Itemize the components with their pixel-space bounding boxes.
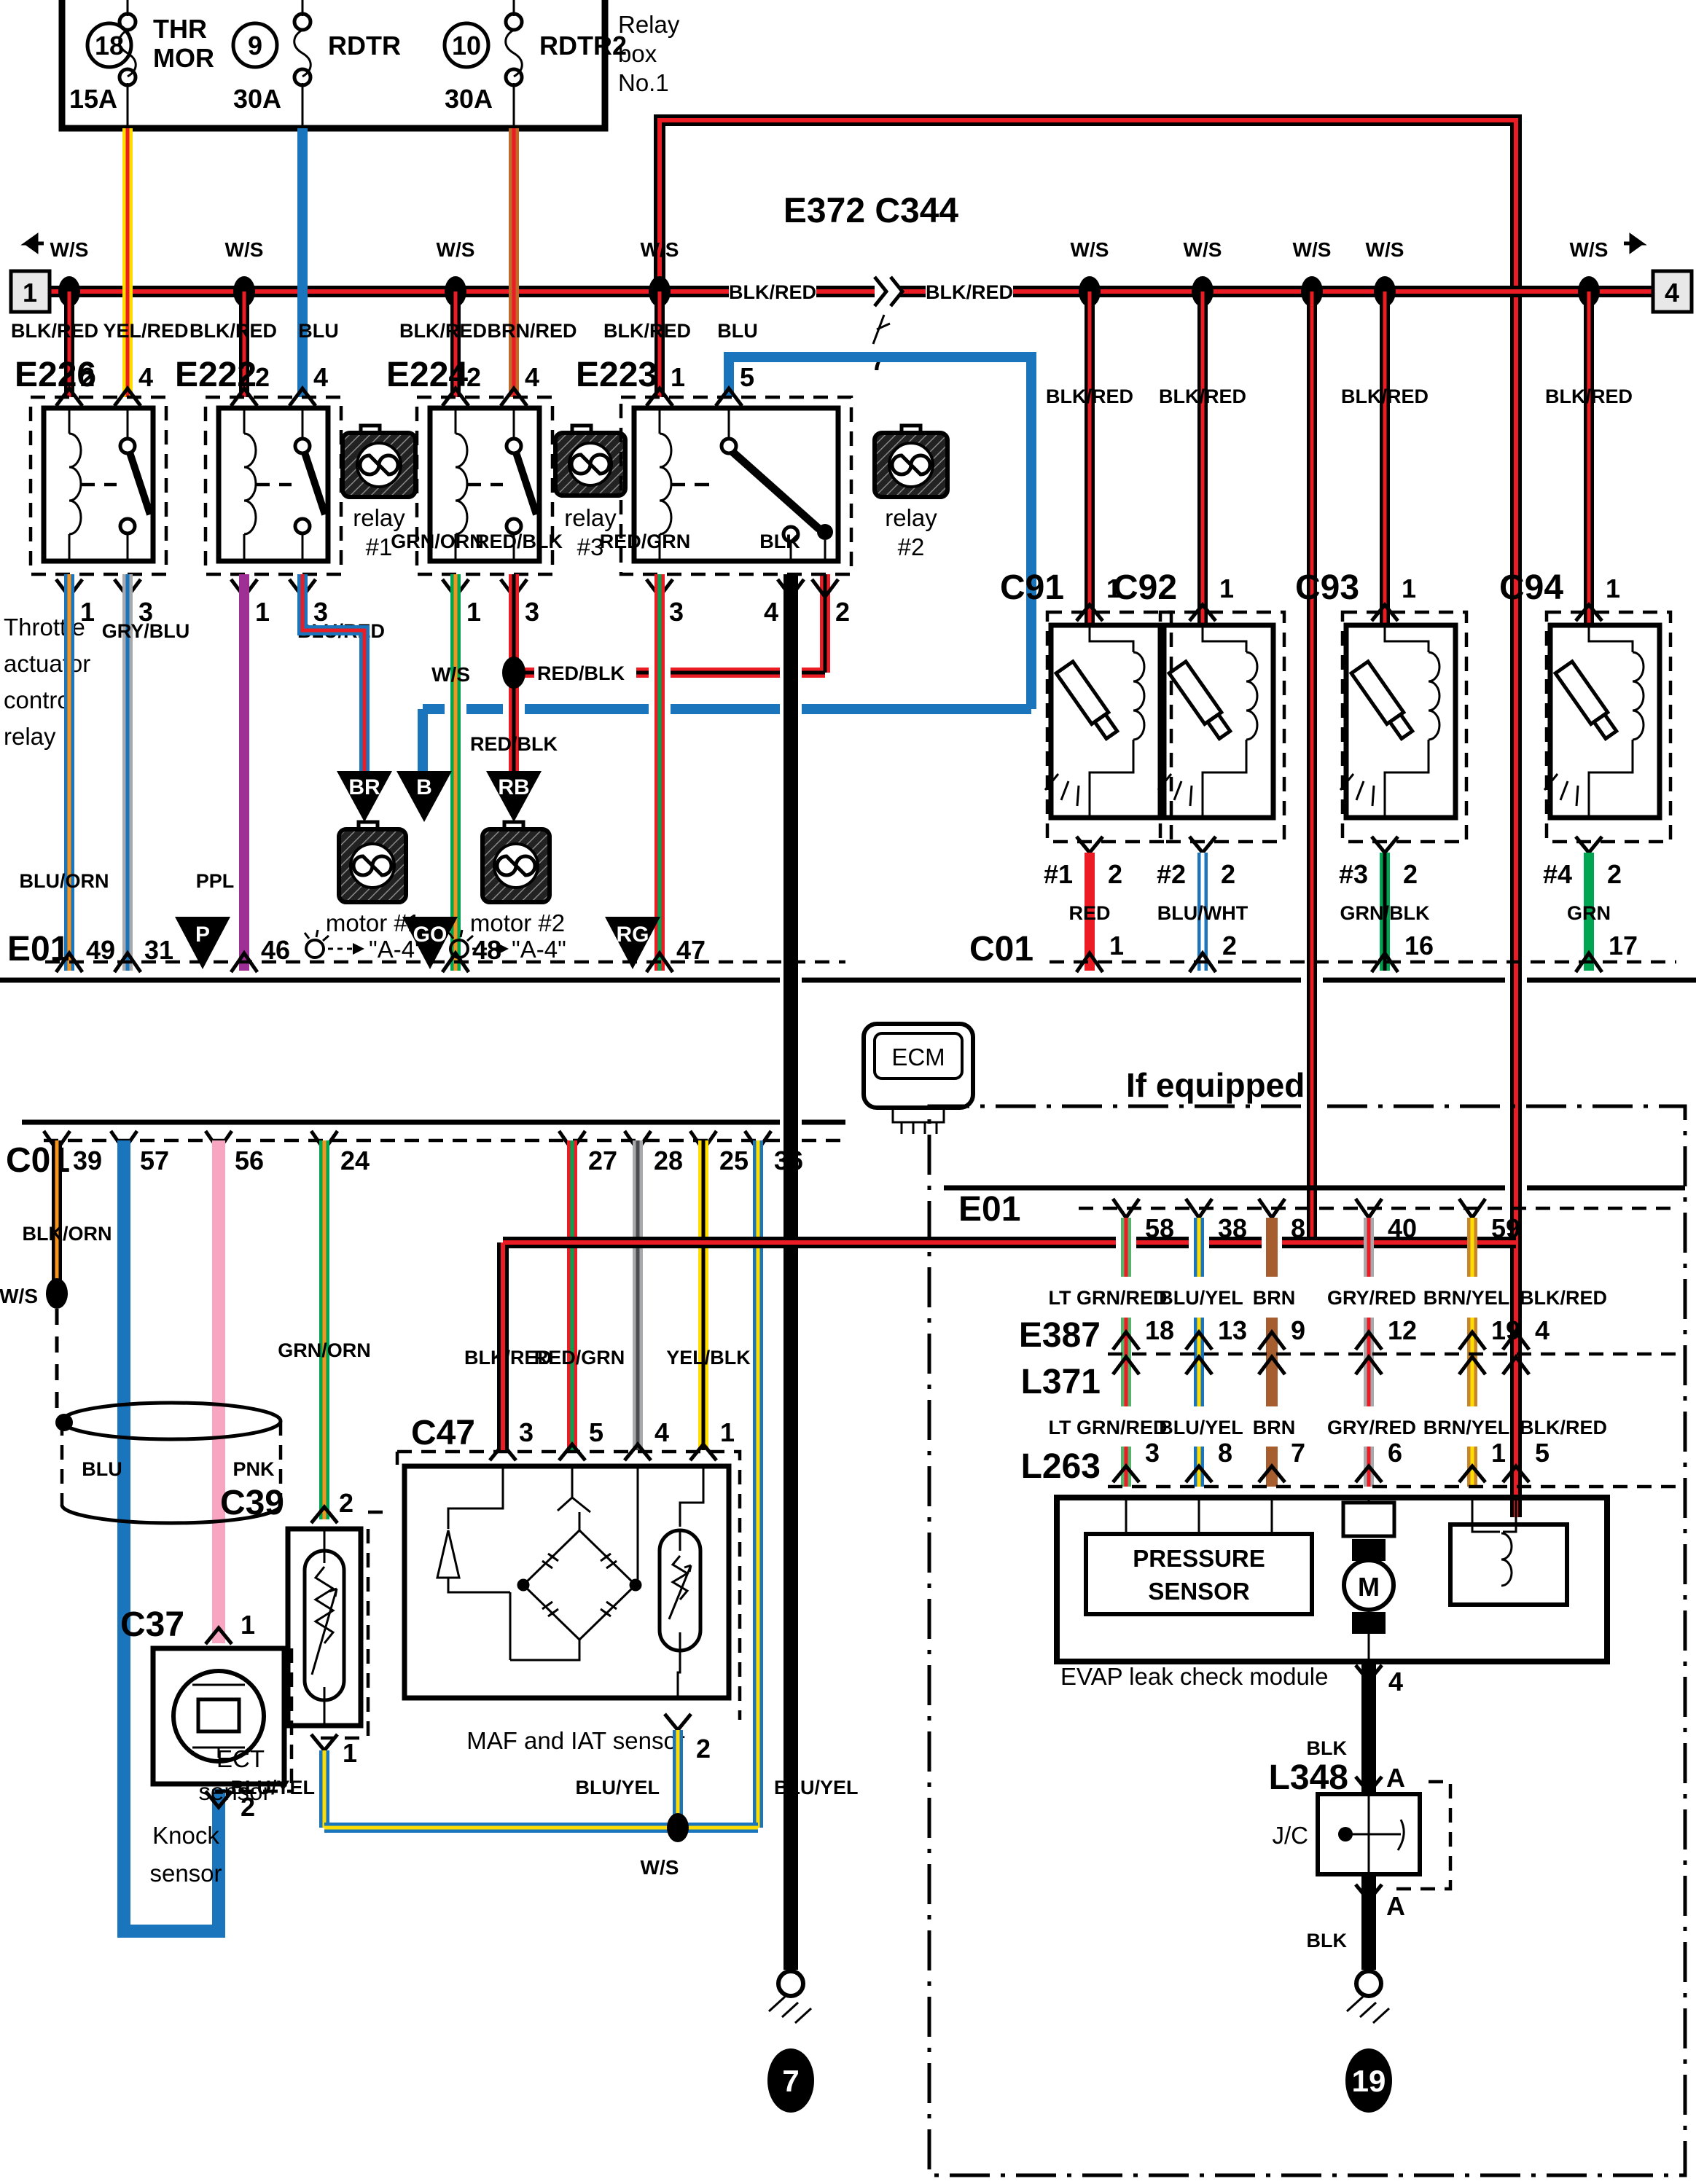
arrow-right-icon [1624,236,1641,251]
c47-pin2: 2 [696,1734,711,1764]
ground-19-icon: 19 [1345,1971,1392,2113]
ws-label: W/S [1071,238,1109,261]
fuse-18: 18 THR MOR 15A [69,0,214,128]
e01-pin47: 47 [676,935,706,965]
evap-label: EVAP leak check module [1060,1663,1328,1690]
e224-wire-top-2: BRN/RED [487,320,577,342]
c01-inj-pin1: 1 [1109,931,1124,960]
injector-c91-id: C91 [1000,568,1064,607]
c92-pin1: 1 [1219,574,1234,603]
motor-2-ref: "A-4" [512,936,566,963]
e01-pin48: 48 [472,935,501,965]
knock-label-2: sensor [149,1860,222,1887]
row2-bluyel: BLU/YEL [1159,1417,1243,1439]
jc-label: J/C [1273,1822,1309,1849]
c01-inj-pin17: 17 [1609,931,1638,960]
blk-label-top: BLK [1307,1737,1348,1759]
pressure-sensor-label-2: SENSOR [1148,1578,1250,1605]
bus-terminal-1-label: 1 [23,278,37,308]
triangle-go-label: GO [413,923,448,947]
relay-e224-id: E224 [386,356,468,394]
e01-pin8: 8 [1291,1213,1305,1243]
row2-ltgrnred: LT GRN/RED [1049,1417,1168,1439]
e387-pin18: 18 [1145,1315,1174,1345]
c92-num: #2 [1157,859,1186,889]
e226-pin2: 2 [80,362,95,392]
inline-wire-label-right: BLK/RED [926,281,1013,303]
evap-module: PRESSURE SENSOR M EVAP leak check module… [1057,1498,1607,1696]
e226-pin4: 4 [138,362,153,392]
e223-wire-top-2: BLU [717,320,758,342]
l348-pin-a-top: A [1386,1763,1405,1793]
main-power-bus: 1 4 W/S W/S W/S W/S W/S W/S W/S W/S W/S … [11,192,1692,376]
maf-bluyel-label: BLU/YEL [575,1777,660,1799]
fan1-caption-1: relay [353,504,405,531]
injector-c93: C93 1 #3 2 GRN/BLK [1295,568,1466,971]
knock-sensor-c37: C37 1 2 Knock sensor [120,1605,292,1887]
e387-id: E387 [1019,1316,1101,1355]
fuse-18-name-2: MOR [153,43,214,73]
e224-pin3: 3 [525,597,539,627]
triangle-br-label: BR [348,775,380,799]
c92-wire-label: BLU/WHT [1157,902,1248,924]
radiator-fan-icon-2: relay #2 [875,426,947,560]
row1-brn: BRN [1253,1287,1296,1309]
triangle-rg-label: RG [617,923,649,947]
e223-pin3: 3 [669,597,684,627]
if-equipped-wires: LT GRN/RED BLU/YEL BRN GRY/RED BRN/YEL B… [1049,1218,1608,1487]
c01-pin25: 25 [719,1146,749,1175]
c01-bottom-wires: BLK/ORN W/S GRN/ORN BLK/RED RED/GRN YEL/… [0,1140,758,1931]
e01-pin31: 31 [144,935,173,965]
row2-gryred: GRY/RED [1327,1417,1416,1439]
ws-label: W/S [1293,238,1332,261]
l263-pin1: 1 [1491,1438,1506,1468]
c01-pin36: 36 [774,1146,803,1175]
c93-wire-label: GRN/BLK [1340,902,1430,924]
e01-right-id: E01 [958,1190,1020,1229]
ect-label-1: ECT [216,1745,265,1772]
c01-inj-pin2: 2 [1222,931,1237,960]
junction-connector-jc: J/C [1273,1794,1421,1874]
fan2-caption-1: relay [885,504,937,531]
row2-blkred: BLK/RED [1520,1417,1607,1439]
ws-label: W/S [437,238,475,261]
c01-bottom-connector: C01 39 57 56 24 27 28 25 36 [6,1122,845,1180]
e01-pin58: 58 [1145,1213,1174,1243]
e223-pin5: 5 [740,362,754,392]
bluorn-label: BLU/ORN [20,870,109,892]
e224-wire-top-1: BLK/RED [399,320,487,342]
wiring-diagram: If equipped 18 THR MOR 15A 9 RDTR 30A 10… [0,0,1696,2184]
ws-label: W/S [1366,238,1404,261]
c47-p5-label: RED/GRN [534,1347,625,1369]
e222-pin1: 1 [255,597,270,627]
bus-terminal-4-label: 4 [1665,278,1679,308]
l263-pin8: 8 [1218,1438,1232,1468]
ground-7-label: 7 [782,2064,799,2098]
redgrn-label: RED/GRN [600,531,691,552]
e223-pin4: 4 [764,597,778,627]
ws-label: W/S [50,238,89,261]
fan1-caption-2: #1 [366,533,393,560]
c01-inj-pin16: 16 [1404,931,1434,960]
row1-ltgrnred: LT GRN/RED [1049,1287,1168,1309]
inj-feed-label: BLK/RED [1545,385,1633,407]
ws-label: W/S [1184,238,1222,261]
motor-1-icon: motor #1 "A-4" [305,822,423,963]
inline-connector-e372-c344: E372 C344 BLK/RED BLK/RED 7 [729,192,1013,376]
row2-brnyel: BRN/YEL [1423,1417,1510,1439]
c01-pin57: 57 [140,1146,169,1175]
e222-wire-top-1: BLK/RED [189,320,277,342]
c37-pin1: 1 [241,1610,255,1640]
c47-pin1: 1 [720,1417,735,1447]
redblk-motor2-label: RED/BLK [470,733,558,755]
row2-brn: BRN [1253,1417,1296,1439]
c39-id: C39 [220,1484,284,1522]
c47-pin3: 3 [519,1417,534,1447]
l263-connector: L263 3 8 7 6 1 5 [1021,1438,1676,1487]
pin36-bluyel-label: BLU/YEL [774,1777,859,1799]
l371-id: L371 [1021,1363,1101,1401]
ws-label: W/S [225,238,264,261]
c47-pin5: 5 [589,1417,603,1447]
motor-2-label: motor #2 [470,909,565,936]
l263-pin3: 3 [1145,1438,1160,1468]
blkorn-label: BLK/ORN [23,1223,112,1245]
c91-num: #1 [1044,859,1073,889]
l348-ground-run: BLK L348 A J/C A BLK 19 [1269,1662,1450,2113]
injector-c92-id: C92 [1113,568,1177,607]
wiring-diagram-page: If equipped 18 THR MOR 15A 9 RDTR 30A 10… [0,0,1696,2184]
e01-pin38: 38 [1218,1213,1247,1243]
e222-pin2: 2 [255,362,270,392]
ws-label: W/S [1570,238,1609,261]
e224-pin2: 2 [466,362,481,392]
relay-e222-id: E222 [175,356,257,394]
row1-bluyel: BLU/YEL [1159,1287,1243,1309]
fuse-18-amp: 15A [69,84,117,114]
row1-blkred: BLK/RED [1520,1287,1607,1309]
e01-pin40: 40 [1388,1213,1417,1243]
e387-chevrons [1113,1332,1529,1374]
c47-p1-label: YEL/BLK [666,1347,751,1369]
fuse-9-number: 9 [248,31,262,60]
l263-pin5: 5 [1535,1438,1550,1468]
l263-pin6: 6 [1388,1438,1402,1468]
c47-id: C47 [411,1414,475,1452]
fan2-caption-2: #2 [898,533,925,560]
grnorn-bot-label: GRN/ORN [278,1339,371,1361]
c01-inj-id: C01 [969,930,1033,968]
triangle-rb: RB [486,771,542,822]
c39-pin2: 2 [339,1488,353,1518]
c47-pin4: 4 [654,1417,669,1447]
c01-pin28: 28 [654,1146,683,1175]
c93-pin2: 2 [1403,859,1418,889]
e222-pin4: 4 [313,362,328,392]
fuse-10-amp: 30A [445,84,493,114]
c37-id: C37 [120,1605,184,1644]
triangle-b: B [396,771,452,822]
arrow-left-icon [26,236,44,251]
injector-c94: C94 1 #4 2 GRN [1499,568,1670,971]
shield-blu-label: BLU [82,1458,122,1480]
c01-pin24: 24 [340,1146,370,1175]
e226-wire-top-2: YEL/RED [103,320,188,342]
ws-splice-label: W/S [431,663,470,686]
relay-box-outline [62,0,605,128]
shield-pnk-label: PNK [232,1458,275,1480]
injector-c92: C92 1 #2 2 BLU/WHT [1113,568,1284,971]
e01-pin59: 59 [1491,1213,1520,1243]
e226-wire-top-1: BLK/RED [11,320,98,342]
fuse-10-name: RDTR2 [539,31,627,60]
e224-pin4: 4 [525,362,539,392]
redblk-label: RED/BLK [475,531,563,552]
e224-pin1: 1 [466,597,481,627]
evap-solenoid-coil [1450,1498,1567,1605]
ws-label: W/S [641,238,679,261]
ecm-label: ECM [891,1044,945,1071]
e223-pin1: 1 [671,362,685,392]
c94-pin2: 2 [1607,859,1622,889]
fuse-10: 10 RDTR2 30A [445,0,627,128]
e387-pin12: 12 [1388,1315,1417,1345]
c92-pin2: 2 [1221,859,1235,889]
relay-box-title-2: box [618,40,657,67]
throttle-relay-caption-4: relay [4,723,56,750]
c01-injector-connector: C01 1 2 16 17 [969,930,1676,972]
fuse-10-number: 10 [452,31,481,60]
e387-pin9: 9 [1291,1315,1305,1345]
c01-pin39: 39 [73,1146,102,1175]
maf-label: MAF and IAT sensor [466,1727,685,1754]
injector-c91: C91 1 #1 2 RED [1000,568,1171,971]
l263-id: L263 [1021,1447,1101,1486]
maf-iat-sensor-c47: C47 3 5 4 1 2 MAF and IAT sensor BLU/YEL [397,1414,740,1828]
evap-pump-motor: M [1343,1498,1394,1662]
injector-c94-id: C94 [1499,568,1563,607]
ground-7-icon: 7 [767,1971,814,2113]
if-equipped-label: If equipped [1126,1066,1305,1104]
throttle-relay-caption-2: actuator [4,650,90,677]
triangle-p-label: P [195,923,210,947]
blk-label: BLK [759,531,800,552]
inline-connector-id: E372 C344 [783,192,958,230]
fuse-9: 9 RDTR 30A [233,0,401,128]
triangle-br: BR [337,771,392,822]
e223-wire-top-1: BLK/RED [603,320,691,342]
l263-pin7: 7 [1291,1438,1305,1468]
ground-19-label: 19 [1352,2064,1386,2098]
e387-pin13: 13 [1218,1315,1247,1345]
grnorn-label: GRN/ORN [391,531,484,552]
fuse-18-name-1: THR [153,14,207,44]
l348-id: L348 [1269,1758,1348,1797]
relay-e226: E226 2 4 1 3 BLK/RED YEL/RED Throttle ac… [4,320,189,750]
e222-wire-top-2: BLU [298,320,339,342]
e387-pin19: 19 [1491,1315,1520,1345]
triangle-b-label: B [416,775,432,799]
c93-num: #3 [1339,859,1368,889]
ws-shield-label: W/S [0,1285,38,1307]
relay-e223-id: E223 [576,356,657,394]
injector-c93-id: C93 [1295,568,1359,607]
e387-pin4: 4 [1535,1315,1550,1345]
c91-pin2: 2 [1108,859,1122,889]
row1-brnyel: BRN/YEL [1423,1287,1510,1309]
fuse-9-amp: 30A [233,84,281,114]
e387-l371-connector: E387 L371 18 13 9 12 19 4 [1019,1315,1676,1401]
ect-bluyel-label: BLU/YEL [230,1777,315,1799]
c94-pin1: 1 [1606,574,1620,603]
redblk-splice-label: RED/BLK [537,662,625,684]
relay-box-1: 18 THR MOR 15A 9 RDTR 30A 10 RDTR2 30A R… [62,0,680,128]
e01-pin46: 46 [261,935,290,965]
blk-label-bottom: BLK [1307,1930,1348,1952]
knock-label-1: Knock [152,1822,219,1849]
inj-feed-label: BLK/RED [1341,385,1429,407]
relay-box-title-3: No.1 [618,69,669,96]
inline-wire-label-left: BLK/RED [729,281,816,303]
triangle-rb-label: RB [498,775,529,799]
inj-feed-label: BLK/RED [1046,385,1133,407]
pressure-sensor-label-1: PRESSURE [1133,1545,1265,1572]
e01-top-id: E01 [7,930,69,968]
e01-pin49: 49 [86,935,115,965]
c93-pin1: 1 [1402,574,1416,603]
motor-m-label: M [1358,1572,1380,1602]
c94-wire-label: GRN [1567,902,1611,924]
c39-pin1: 1 [343,1738,357,1768]
relay-box-title-1: Relay [618,11,680,38]
fuse-9-name: RDTR [328,31,401,60]
c01-pin27: 27 [588,1146,617,1175]
c94-num: #4 [1543,859,1572,889]
maf-bridge [510,1512,641,1660]
gryblu-label: GRY/BLU [102,620,190,642]
inj-feed-label: BLK/RED [1159,385,1246,407]
l348-pin-a-bottom: A [1386,1891,1405,1921]
row1-gryred: GRY/RED [1327,1287,1416,1309]
e223-pin2: 2 [835,597,850,627]
ecm-icon: ECM [864,1024,973,1134]
c91-wire-label: RED [1068,902,1110,924]
ppl-label: PPL [196,870,235,892]
ws-bluyel-label: W/S [641,1856,679,1879]
fan3-caption-1: relay [564,504,617,531]
relay-feed-wires [69,291,660,397]
motor-2-icon: motor #2 "A-4" [449,822,566,963]
c01-pin56: 56 [235,1146,264,1175]
evap-pin4: 4 [1388,1667,1403,1696]
